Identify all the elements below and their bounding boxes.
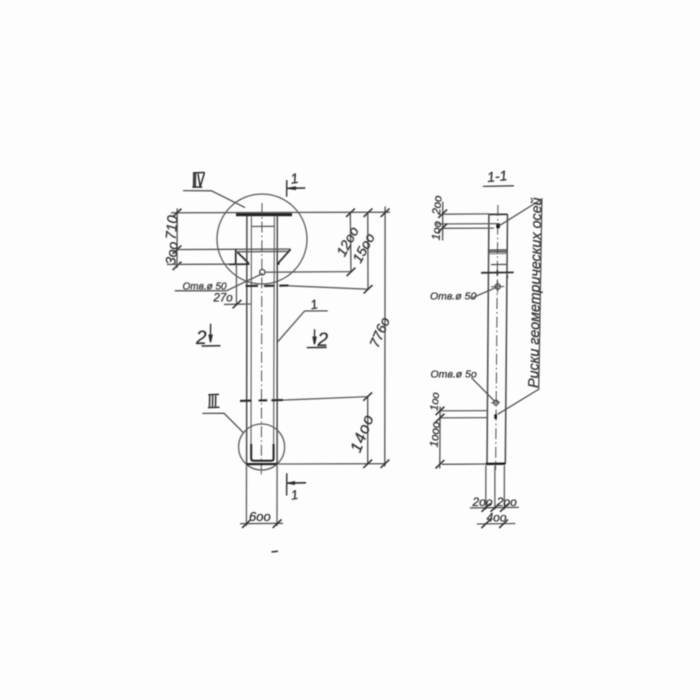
svg-text:2: 2 <box>195 328 207 349</box>
svg-text:3oo: 3oo <box>162 241 181 266</box>
svg-text:1-1: 1-1 <box>486 167 508 185</box>
svg-text:710: 710 <box>164 215 182 241</box>
svg-text:776o: 776o <box>366 315 393 350</box>
svg-text:14oo: 14oo <box>348 412 378 455</box>
svg-text:2: 2 <box>317 330 329 351</box>
svg-text:2oo: 2oo <box>496 495 517 509</box>
svg-text:1: 1 <box>290 487 299 503</box>
svg-text:Отв.ø 50: Отв.ø 50 <box>183 282 228 293</box>
svg-text:1: 1 <box>289 170 299 187</box>
svg-text:6oo: 6oo <box>249 509 271 524</box>
svg-text:1: 1 <box>309 296 319 312</box>
svg-text:2oo: 2oo <box>431 194 445 216</box>
svg-text:Отв.ø 50: Отв.ø 50 <box>430 291 476 303</box>
svg-text:Риски геометрических осей: Риски геометрических осей <box>526 197 545 388</box>
svg-text:1oo: 1oo <box>431 220 445 241</box>
svg-text:1oo: 1oo <box>429 392 443 411</box>
svg-text:2oo: 2oo <box>472 495 493 509</box>
svg-text:Отв.ø 5o: Отв.ø 5o <box>431 369 477 381</box>
svg-text:27o: 27o <box>213 293 234 305</box>
svg-text:4oo: 4oo <box>487 511 507 525</box>
svg-text:1ooo: 1ooo <box>429 421 443 448</box>
